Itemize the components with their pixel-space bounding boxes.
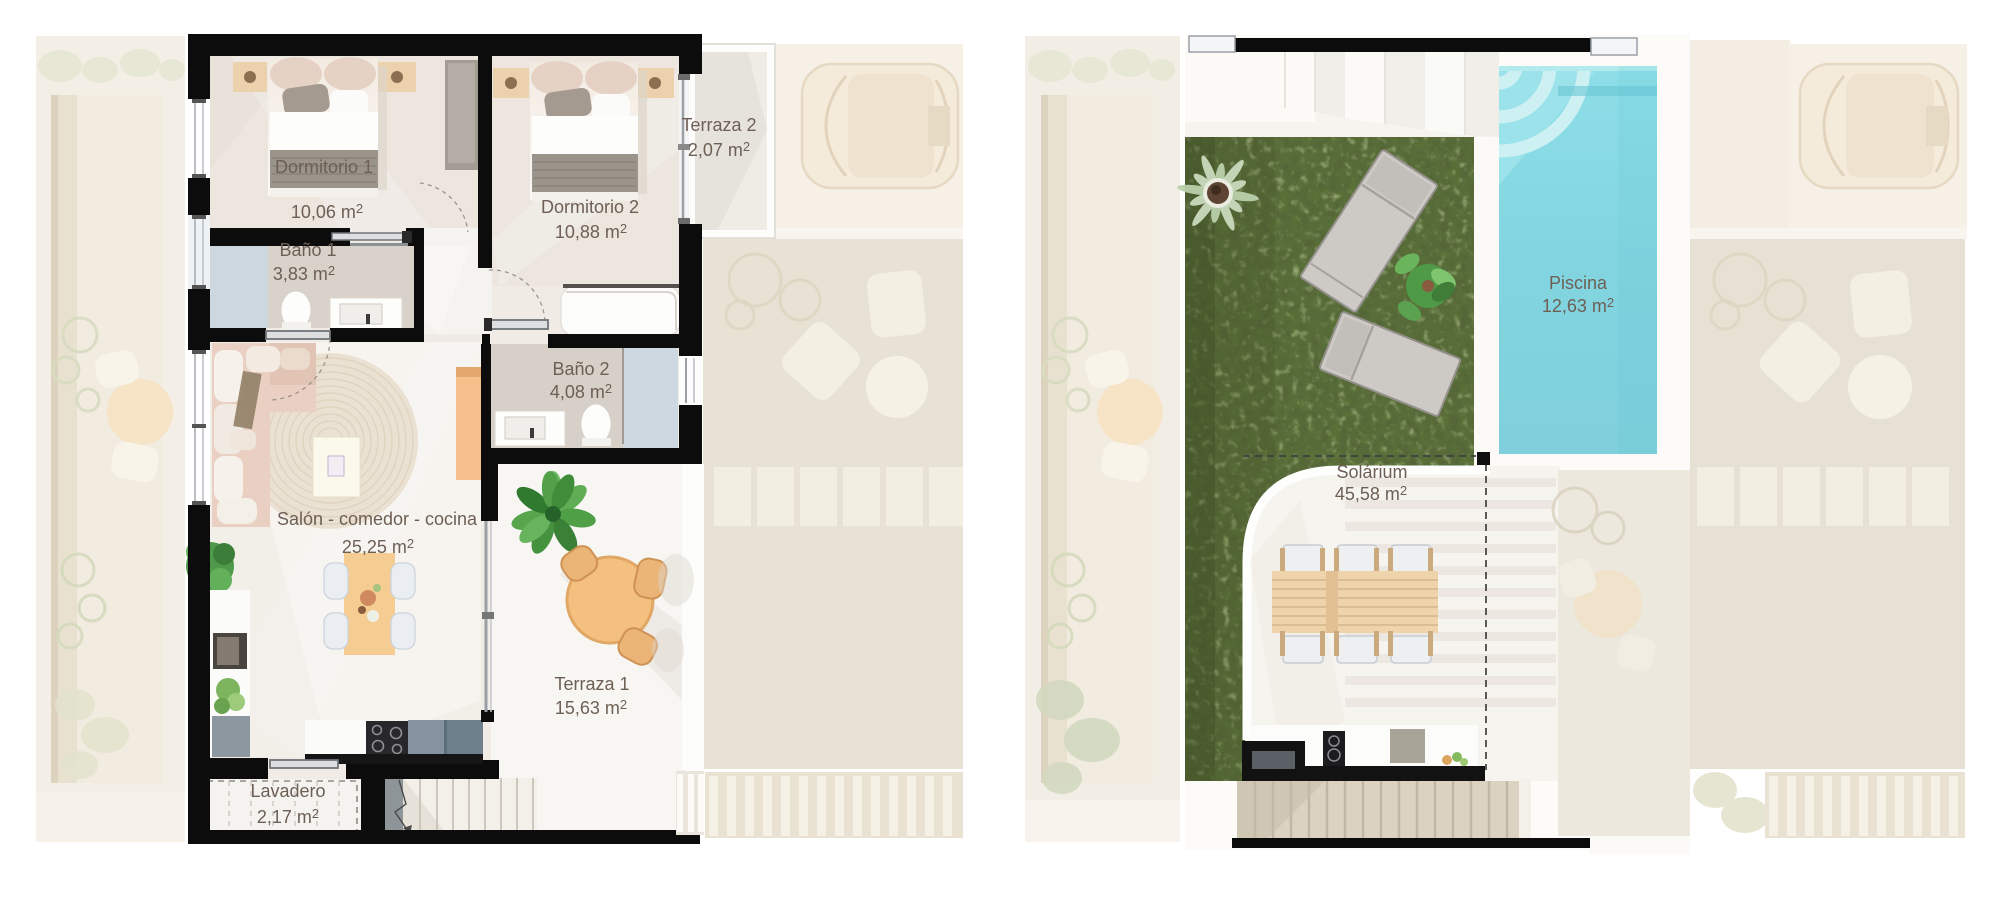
- svg-text:Terraza 2: Terraza 2: [681, 115, 756, 135]
- svg-text:Salón - comedor - cocina: Salón - comedor - cocina: [277, 509, 478, 529]
- svg-text:45,58 m2: 45,58 m2: [1335, 483, 1407, 504]
- svg-text:12,63 m2: 12,63 m2: [1542, 295, 1614, 316]
- svg-text:25,25 m2: 25,25 m2: [342, 536, 414, 557]
- svg-text:3,83 m2: 3,83 m2: [273, 263, 335, 284]
- svg-text:10,88 m2: 10,88 m2: [555, 221, 627, 242]
- svg-text:Lavadero: Lavadero: [250, 781, 325, 801]
- svg-text:Solárium: Solárium: [1336, 462, 1407, 482]
- svg-text:Terraza 1: Terraza 1: [554, 674, 629, 694]
- svg-text:4,08 m2: 4,08 m2: [550, 381, 612, 402]
- svg-text:Baño 1: Baño 1: [279, 240, 336, 260]
- svg-text:10,06 m2: 10,06 m2: [291, 201, 363, 222]
- svg-text:15,63 m2: 15,63 m2: [555, 697, 627, 718]
- svg-text:Piscina: Piscina: [1549, 273, 1608, 293]
- svg-text:2,07 m2: 2,07 m2: [688, 139, 750, 160]
- svg-text:Dormitorio 1: Dormitorio 1: [275, 157, 373, 177]
- svg-text:2,17 m2: 2,17 m2: [257, 806, 319, 827]
- svg-text:Baño 2: Baño 2: [552, 359, 609, 379]
- svg-text:Dormitorio 2: Dormitorio 2: [541, 197, 639, 217]
